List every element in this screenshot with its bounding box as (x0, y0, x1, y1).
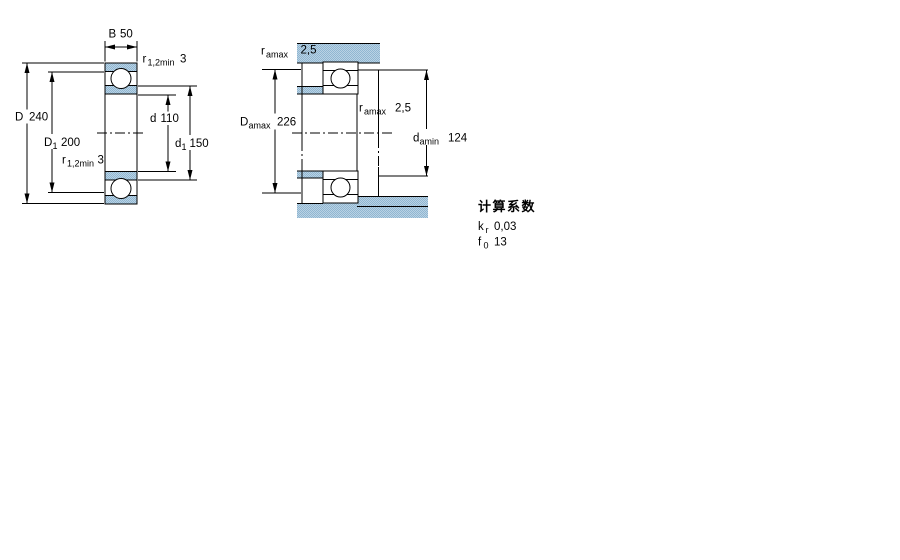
dimension-Da: D amax 226 (239, 70, 302, 194)
dim-D1-value: 200 (61, 137, 80, 149)
dim-Da-value: 226 (277, 117, 296, 129)
figure-left-bearing-cross-section: B 50 r 1,2min 3 D 240 D 1 200 (14, 29, 210, 205)
dim-da-label: d (413, 133, 419, 145)
dimension-d: d 110 (138, 95, 180, 172)
dim-ra-top-value: 2,5 (301, 45, 317, 57)
shaft-block-bottom (297, 197, 428, 219)
ball-top (111, 69, 131, 89)
dim-ra-mid-subscript: amax (364, 107, 387, 117)
dim-D1-subscript: 1 (53, 141, 58, 151)
factor-kr-value: 0,03 (494, 221, 516, 233)
factor-f0-value: 13 (494, 237, 507, 249)
dimension-r-top: r 1,2min 3 (143, 54, 187, 68)
dim-r-top-subscript: 1,2min (148, 58, 175, 68)
dim-r-top-label: r (143, 54, 147, 66)
technical-drawing: B 50 r 1,2min 3 D 240 D 1 200 (0, 0, 900, 560)
factor-kr-subscript: r (486, 225, 489, 235)
calculation-factors: 计算系数 k r 0,03 f 0 13 (478, 199, 536, 251)
dim-ra-top-label: r (261, 46, 265, 58)
factor-f0-subscript: 0 (484, 241, 489, 251)
dim-Da-subscript: amax (249, 121, 272, 131)
dim-ra-mid-value: 2,5 (395, 103, 411, 115)
dim-D-value: 240 (29, 112, 48, 124)
housing-shoulder-bottom (297, 171, 323, 178)
dimension-d1: d 1 150 (138, 86, 210, 180)
factor-f0-label: f (478, 237, 482, 249)
dim-Da-label: D (240, 117, 248, 129)
dim-B-value: 50 (120, 29, 133, 41)
bearing-section (97, 63, 145, 204)
dimension-r-bottom: r 1,2min 3 (61, 152, 105, 169)
ball-top (331, 69, 350, 88)
dim-d-value: 110 (161, 113, 179, 125)
figure-right-mounting-dimensions: D amax 226 d amin 124 r amax 2,5 r amax … (239, 43, 468, 218)
dim-d1-subscript: 1 (182, 142, 187, 152)
dimension-D: D 240 (14, 63, 105, 204)
dimension-D1: D 1 200 (43, 72, 105, 193)
dim-d1-label: d (175, 138, 181, 150)
dimension-ra-mid: r amax 2,5 (359, 103, 411, 117)
ball-bottom (331, 178, 350, 197)
dim-r-top-value: 3 (180, 54, 186, 66)
dim-B-label: B (109, 29, 117, 41)
dim-ra-top-subscript: amax (266, 50, 289, 60)
factors-title: 计算系数 (478, 199, 536, 214)
dim-ra-mid-label: r (359, 103, 363, 115)
dim-D-label: D (15, 112, 23, 124)
factor-kr-label: k (478, 221, 484, 233)
housing-shoulder-top (297, 87, 323, 95)
dimension-B: B 50 (105, 29, 137, 62)
dim-d-label: d (150, 113, 156, 125)
housing-and-shaft (297, 43, 428, 218)
dim-r-bottom-value: 3 (98, 155, 104, 167)
bearing-drawing-canvas: B 50 r 1,2min 3 D 240 D 1 200 (0, 0, 900, 560)
dim-r-bottom-subscript: 1,2min (67, 159, 94, 169)
ball-bottom (111, 179, 131, 199)
dim-d1-value: 150 (190, 138, 209, 150)
dim-da-value: 124 (448, 133, 468, 145)
dim-r-bottom-label: r (62, 155, 66, 167)
bearing-section-mounted (292, 62, 392, 203)
dim-D1-label: D (44, 137, 52, 149)
dimension-da: d amin 124 (412, 70, 468, 176)
dim-da-subscript: amin (420, 137, 440, 147)
